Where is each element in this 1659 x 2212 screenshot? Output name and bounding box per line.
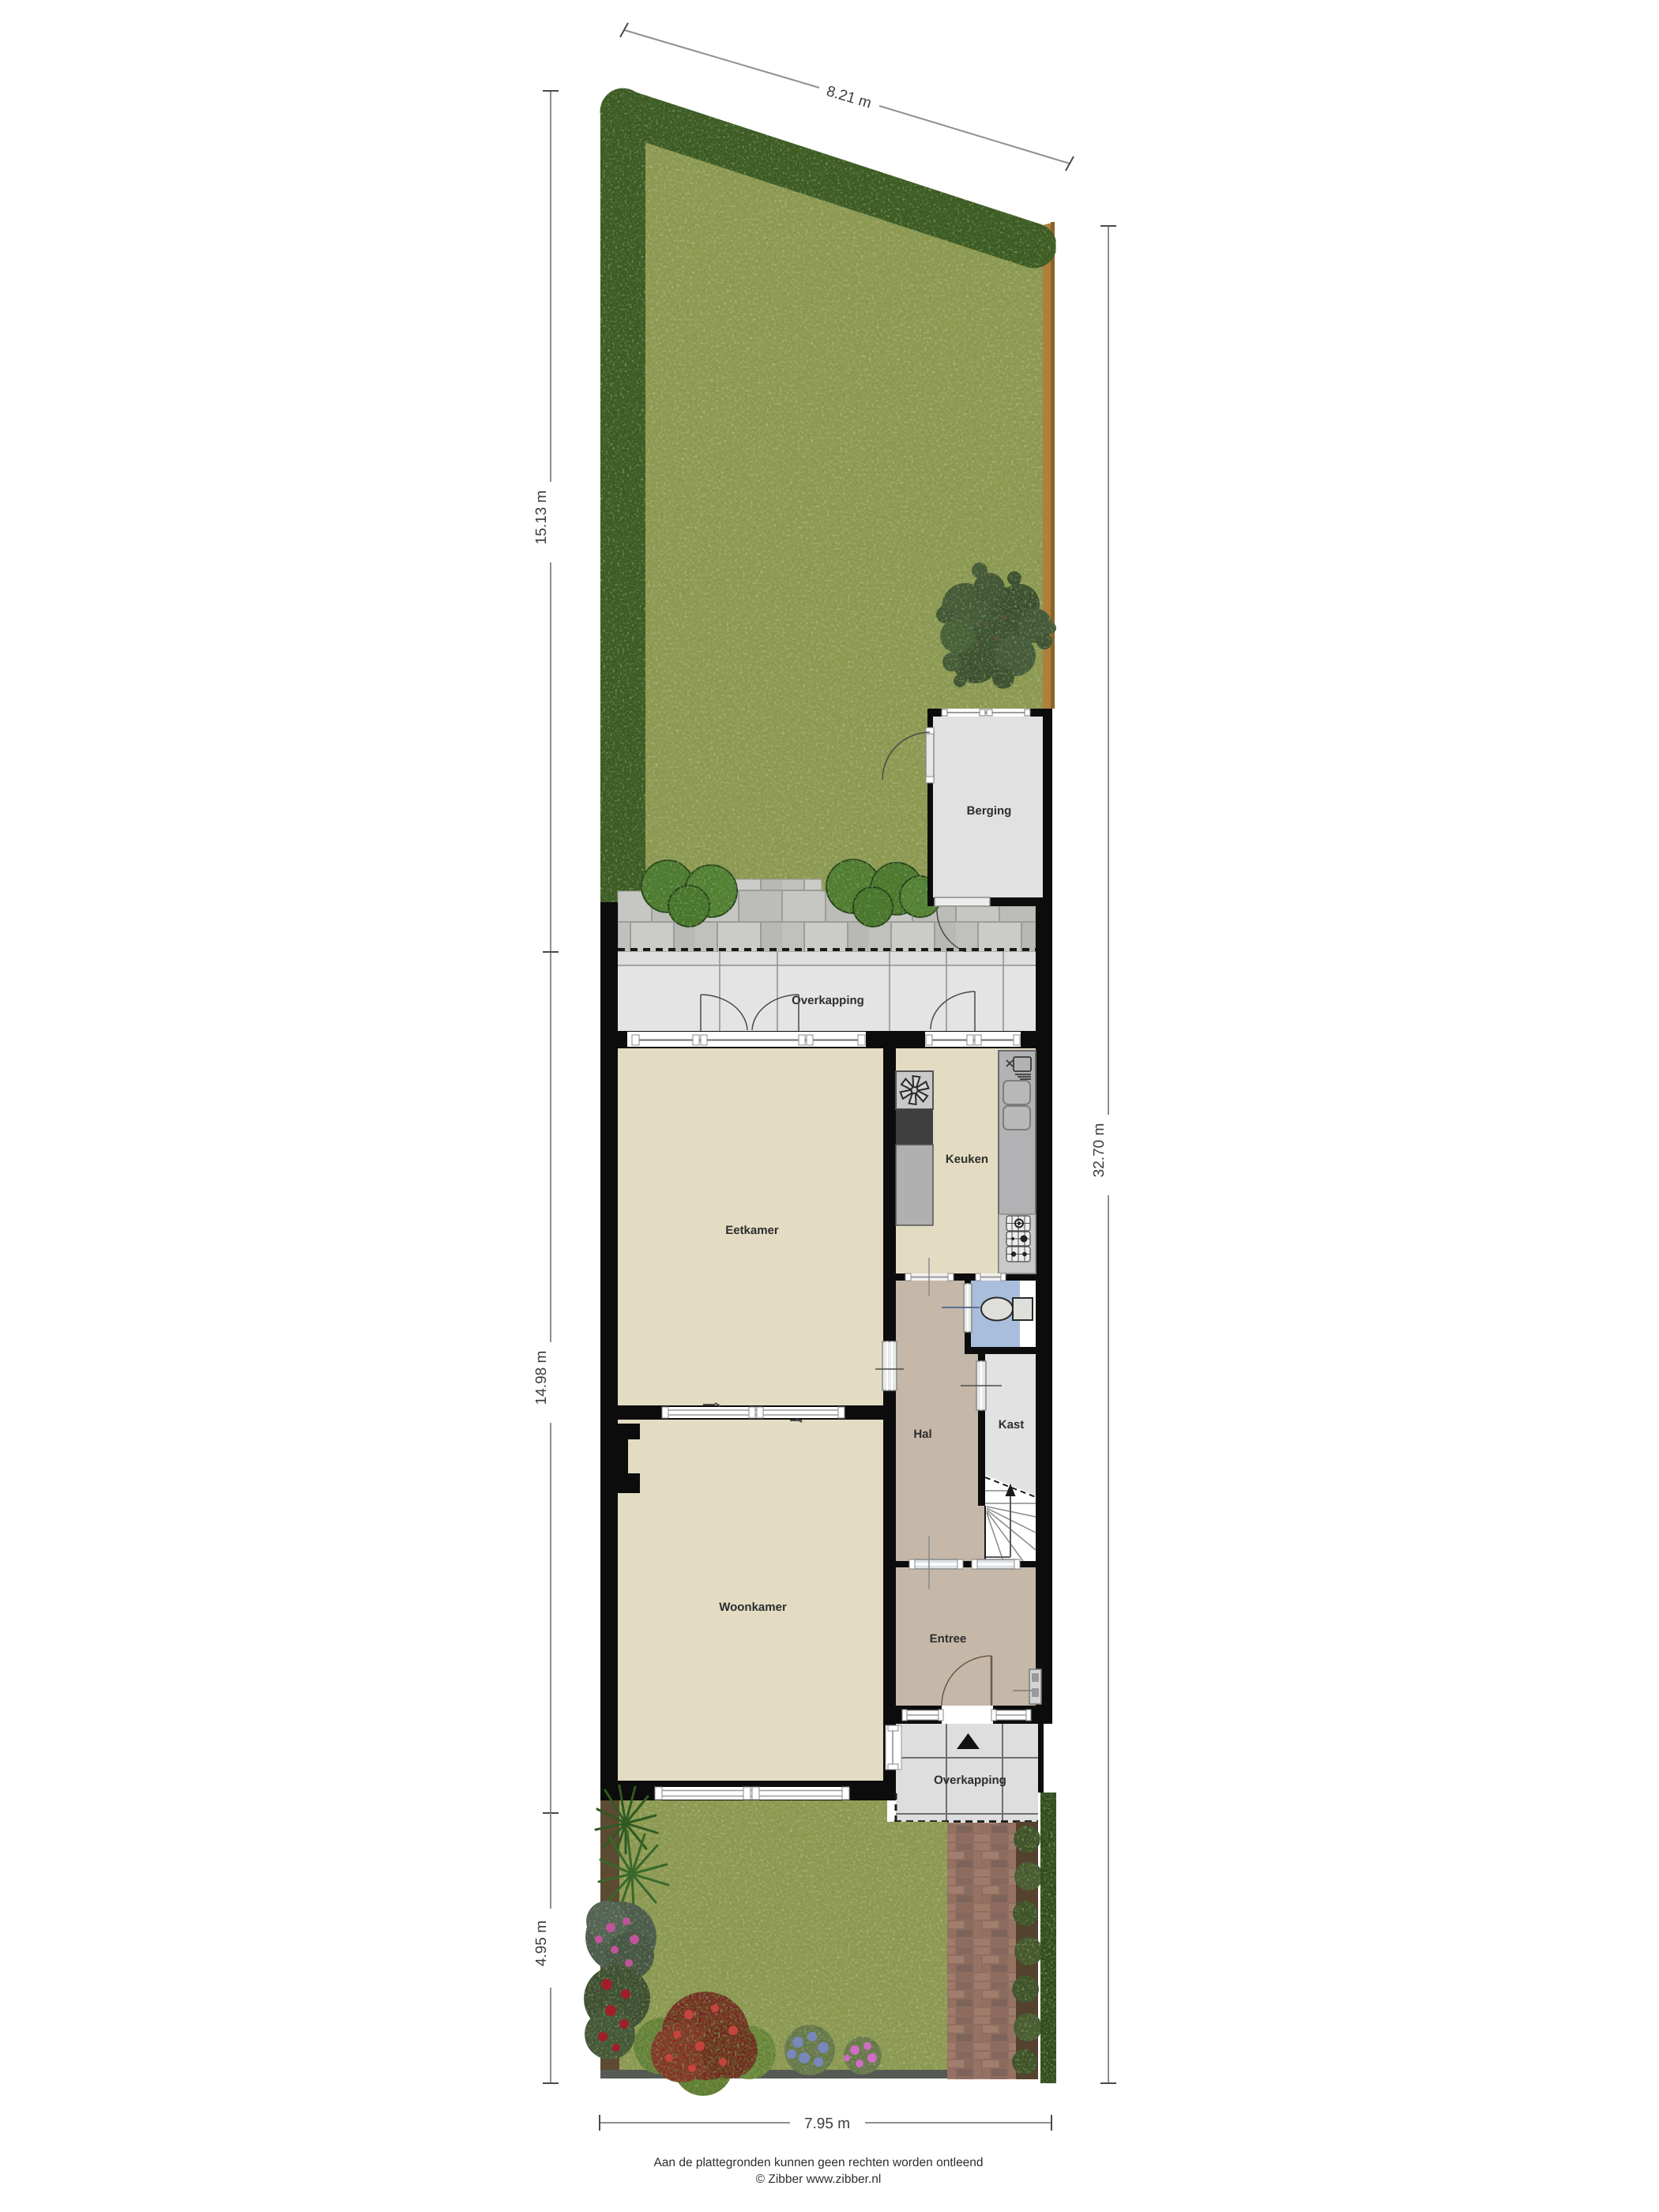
- svg-text:Woonkamer: Woonkamer: [719, 1601, 787, 1614]
- svg-text:Keuken: Keuken: [946, 1153, 988, 1166]
- svg-text:4.95 m: 4.95 m: [533, 1920, 550, 1966]
- svg-text:14.98 m: 14.98 m: [533, 1351, 550, 1405]
- svg-text:Overkapping: Overkapping: [934, 1774, 1006, 1787]
- svg-text:Hal: Hal: [913, 1428, 931, 1441]
- svg-text:Eetkamer: Eetkamer: [725, 1224, 779, 1237]
- svg-text:Kast: Kast: [999, 1418, 1025, 1431]
- svg-text:32.70 m: 32.70 m: [1091, 1123, 1108, 1178]
- svg-text:Aan de plattegronden kunnen ge: Aan de plattegronden kunnen geen rechten…: [653, 2156, 983, 2169]
- svg-text:15.13 m: 15.13 m: [533, 491, 550, 545]
- svg-text:Overkapping: Overkapping: [792, 994, 864, 1007]
- svg-text:Berging: Berging: [967, 804, 1012, 818]
- svg-text:Entree: Entree: [930, 1632, 967, 1646]
- svg-text:7.95 m: 7.95 m: [804, 2116, 850, 2132]
- svg-text:© Zibber www.zibber.nl: © Zibber www.zibber.nl: [756, 2172, 882, 2186]
